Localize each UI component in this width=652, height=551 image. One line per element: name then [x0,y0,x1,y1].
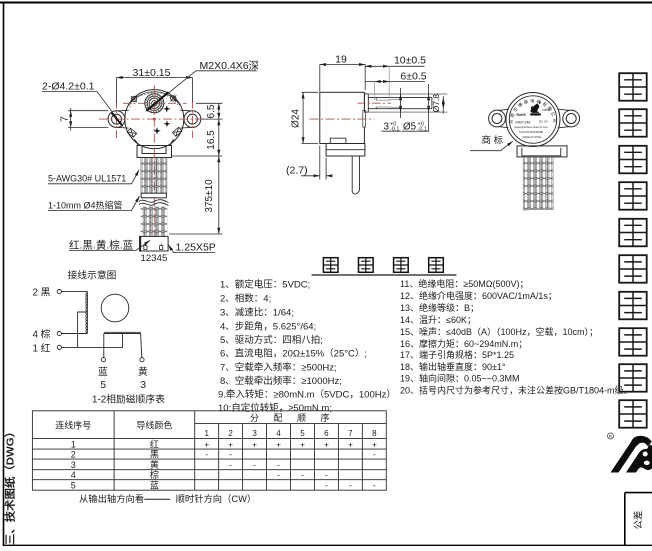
svg-text:13、绝缘等级：B；: 13、绝缘等级：B； [400,302,479,313]
svg-text:蓝: 蓝 [150,479,159,490]
svg-text:19: 19 [335,53,347,65]
svg-text:5-AWG30# UL1571: 5-AWG30# UL1571 [48,174,126,184]
svg-text:14、温升：≤60K；: 14、温升：≤60K； [400,315,476,325]
svg-text:从输出轴方向看: 从输出轴方向看 [79,493,144,504]
svg-text:MADE IN CHINA: MADE IN CHINA [523,136,542,139]
svg-text:-: - [325,469,328,479]
svg-text:-0.1: -0.1 [390,127,399,133]
svg-text:31±0.15: 31±0.15 [133,67,171,79]
svg-text:棕: 棕 [150,469,159,480]
svg-text:10±0.5: 10±0.5 [394,54,426,66]
svg-text:5: 5 [71,480,76,490]
svg-text:7: 7 [348,429,353,438]
svg-text:+: + [228,439,233,449]
svg-text:+: + [252,439,257,449]
svg-text:Ø5: Ø5 [403,121,417,132]
svg-text:1-10mm Ø4热缩管: 1-10mm Ø4热缩管 [48,200,123,211]
svg-text:7、空载牵入频率：≥500Hz;: 7、空载牵入频率：≥500Hz; [220,362,337,374]
svg-text:+: + [348,439,353,449]
svg-text:-: - [301,469,304,479]
svg-text:连线序号: 连线序号 [55,420,91,431]
svg-text:6.5: 6.5 [206,104,217,118]
svg-text:5、驱动方式：四相八拍;: 5、驱动方式：四相八拍; [220,334,323,346]
svg-text:8: 8 [372,429,377,438]
svg-text:-0.1: -0.1 [418,127,427,133]
svg-text:16.5: 16.5 [206,130,217,150]
svg-text:11、绝缘电阻：≥50MΩ(500V)；: 11、绝缘电阻：≥50MΩ(500V)； [400,278,529,289]
svg-text:2: 2 [228,429,233,438]
svg-text:+: + [204,439,209,449]
svg-text:蓝: 蓝 [98,366,108,378]
svg-text:17、端子引角规格：5P*1.25: 17、端子引角规格：5P*1.25 [400,349,514,360]
svg-text:黄: 黄 [150,459,159,470]
svg-text:1.25X5P: 1.25X5P [176,242,216,254]
svg-text:7: 7 [59,116,71,122]
svg-text:12、绝缘介电强度：600VAC/1mA/1s；: 12、绝缘介电强度：600VAC/1mA/1s； [400,290,557,301]
svg-text:公差: 公差 [633,510,645,529]
svg-text:375±10: 375±10 [204,179,215,213]
svg-text:红.黑.黄.棕.蓝: 红.黑.黄.棕.蓝 [69,239,134,252]
svg-text:3: 3 [140,379,146,391]
svg-text:12345: 12345 [141,253,168,264]
svg-text:01BW/T: 01BW/T [542,108,552,112]
svg-text:导线颜色: 导线颜色 [136,420,172,431]
svg-text:2-Ø4.2±0.1: 2-Ø4.2±0.1 [42,81,95,93]
svg-text:6、直流电阻，20Ω±15%（25°C）;: 6、直流电阻，20Ω±15%（25°C）; [220,348,367,360]
svg-text:三、技术图纸（DWG）: 三、技术图纸（DWG） [4,426,17,545]
svg-text:1、额定电压：5VDC;: 1、额定电压：5VDC; [220,279,310,291]
svg-text:3: 3 [252,429,257,438]
svg-text:商 标: 商 标 [482,135,504,147]
svg-text:3: 3 [71,460,76,470]
svg-text:Ø24: Ø24 [290,109,301,128]
svg-text:4、步距角，5.625°/64;: 4、步距角，5.625°/64; [220,320,316,332]
svg-text:(2.7): (2.7) [286,165,308,177]
svg-text:顺时针方向（CW）: 顺时针方向（CW） [176,493,257,504]
svg-text:4 棕: 4 棕 [33,328,51,341]
svg-text:2、相数：4;: 2、相数：4; [220,293,271,305]
svg-text:+: + [276,439,281,449]
svg-text:Tel:0769-82343288: Tel:0769-82343288 [519,130,543,134]
svg-text:-: - [229,449,232,459]
svg-text:+: + [324,439,329,449]
svg-text:24BYJ48: 24BYJ48 [515,121,530,125]
svg-text:6±0.5: 6±0.5 [400,70,426,82]
svg-text:18、输出轴垂直度：90±1°: 18、输出轴垂直度：90±1° [400,361,506,372]
svg-text:4: 4 [276,429,281,438]
svg-text:8、空载牵出频率：≥1000Hz;: 8、空载牵出频率：≥1000Hz; [220,375,342,387]
svg-text:黄: 黄 [138,365,148,378]
svg-text:20、括号内尺寸为参考尺寸，未注公差按GB/T1804-m级: 20、括号内尺寸为参考尺寸，未注公差按GB/T1804-m级。 [400,385,633,396]
svg-text:2: 2 [71,449,76,459]
svg-text:+: + [300,439,305,449]
svg-text:3: 3 [384,121,390,132]
svg-text:M2X0.4X6深: M2X0.4X6深 [200,60,260,72]
svg-text:19、轴向间隙：0.05~~0.3MM: 19、轴向间隙：0.05~~0.3MM [400,373,520,384]
svg-text:1-2相励磁顺序表: 1-2相励磁顺序表 [92,393,165,406]
svg-text:-: - [253,459,256,469]
svg-text:+: + [372,439,377,449]
svg-text:9.牵入转矩：≥80mN.m（5VDC，100Hz）: 9.牵入转矩：≥80mN.m（5VDC，100Hz） [218,389,396,401]
svg-text:Ø7.8: Ø7.8 [431,94,441,113]
svg-text:1 红: 1 红 [33,341,51,354]
svg-text:-: - [277,469,280,479]
svg-text:15、噪声：≤40dB（A）（100Hz，空载，10cm）；: 15、噪声：≤40dB（A）（100Hz，空载，10cm）； [400,326,598,337]
svg-text:www.dg-bohou-motor.cn.com: www.dg-bohou-motor.cn.com [514,125,548,129]
svg-text:-: - [373,480,376,490]
svg-text:2 黑: 2 黑 [33,287,51,299]
svg-text:1: 1 [204,429,209,438]
svg-text:16、摩擦力矩：60~294mN.m；: 16、摩擦力矩：60~294mN.m； [400,338,527,349]
svg-text:RoHS: RoHS [517,113,527,117]
svg-text:4: 4 [71,470,76,480]
svg-text:5: 5 [300,429,305,438]
svg-text:-: - [205,449,208,459]
svg-text:-: - [325,480,328,490]
svg-text:DC 5V: DC 5V [539,120,548,124]
svg-text:-: - [277,459,280,469]
svg-text:-: - [229,459,232,469]
svg-text:3、减速比：1/64;: 3、减速比：1/64; [220,307,294,319]
svg-text:6: 6 [324,429,329,438]
svg-text:-: - [349,480,352,490]
svg-text:-: - [373,449,376,459]
svg-text:分配顺序: 分配顺序 [250,412,344,423]
svg-text:1: 1 [71,439,76,449]
svg-text:5: 5 [100,379,106,391]
svg-text:红: 红 [150,438,159,449]
svg-text:接线示意图: 接线示意图 [68,269,117,282]
svg-text:黑: 黑 [150,449,159,459]
